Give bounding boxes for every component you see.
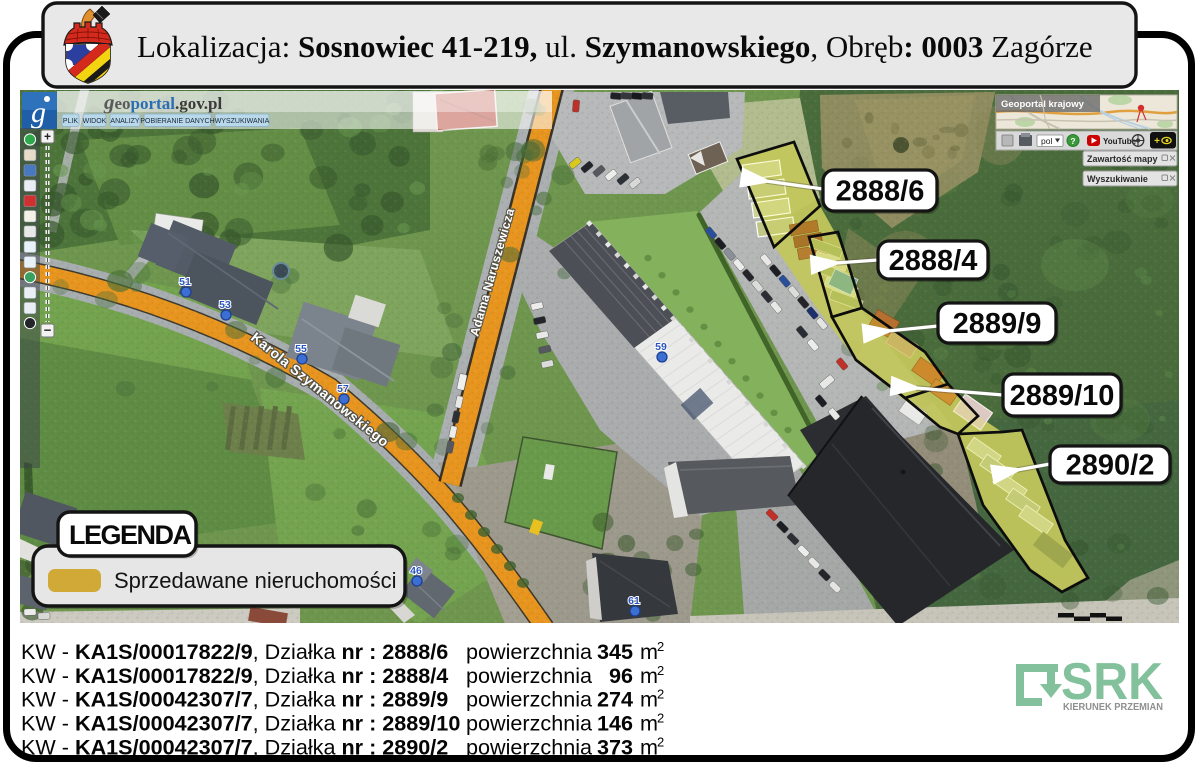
svg-text:powierzchnia: powierzchnia (466, 734, 593, 759)
svg-text:LEGENDA: LEGENDA (69, 520, 192, 550)
svg-text:m: m (640, 639, 658, 664)
svg-text:345: 345 (597, 639, 633, 664)
svg-text:96: 96 (609, 663, 633, 688)
svg-text:+: + (44, 130, 51, 144)
svg-text:2889/9: 2889/9 (953, 308, 1042, 340)
svg-text:powierzchnia: powierzchnia (466, 711, 593, 736)
svg-text:m: m (640, 663, 658, 688)
svg-text:m: m (640, 687, 658, 712)
svg-text:2: 2 (657, 687, 664, 702)
svg-text:2888/4: 2888/4 (889, 245, 978, 277)
svg-text:Sprzedawane nieruchomości: Sprzedawane nieruchomości (114, 568, 397, 593)
svg-text:ANALIZY: ANALIZY (110, 118, 140, 125)
svg-text:powierzchnia: powierzchnia (466, 663, 593, 688)
svg-text:2: 2 (657, 639, 664, 654)
svg-text:53: 53 (219, 299, 231, 311)
svg-text:2889/10: 2889/10 (1010, 380, 1115, 412)
svg-text:powierzchnia: powierzchnia (466, 687, 593, 712)
svg-text:g: g (31, 96, 46, 129)
svg-text:51: 51 (179, 276, 191, 288)
svg-text:2: 2 (657, 711, 664, 726)
svg-text:2: 2 (657, 663, 664, 678)
svg-text:46: 46 (410, 565, 422, 577)
svg-text:m: m (640, 734, 658, 759)
svg-text:Zawartość mapy: Zawartość mapy (1087, 154, 1158, 164)
svg-text:2888/6: 2888/6 (836, 176, 925, 208)
svg-text:−: − (44, 323, 52, 338)
svg-text:274: 274 (597, 687, 633, 712)
svg-text:KW - KA1S/00042307/7, Działka: KW - KA1S/00042307/7, Działka nr : 2890/… (21, 734, 448, 759)
svg-text:m: m (640, 711, 658, 736)
svg-text:KW - KA1S/00017822/9, Działka: KW - KA1S/00017822/9, Działka nr : 2888/… (21, 663, 448, 688)
svg-text:WYSZUKIWANIA: WYSZUKIWANIA (215, 118, 270, 125)
svg-text:+: + (1154, 136, 1160, 147)
svg-text:KIERUNEK PRZEMIAN: KIERUNEK PRZEMIAN (1063, 701, 1163, 713)
svg-text:57: 57 (337, 383, 349, 395)
svg-text:146: 146 (597, 711, 633, 736)
svg-text:pol: pol (1041, 136, 1052, 146)
svg-text:373: 373 (597, 734, 633, 759)
svg-text:Wyszukiwanie: Wyszukiwanie (1087, 174, 1148, 184)
svg-text:59: 59 (655, 341, 667, 353)
svg-text:WIDOK: WIDOK (83, 118, 107, 125)
svg-text:2: 2 (657, 734, 664, 749)
svg-text:Lokalizacja: Sosnowiec 41-219,: Lokalizacja: Sosnowiec 41-219, ul. Szyma… (137, 29, 1093, 64)
svg-text:KW - KA1S/00042307/7, Działka: KW - KA1S/00042307/7, Działka nr : 2889/… (21, 711, 460, 736)
svg-text:POBIERANIE DANYCH: POBIERANIE DANYCH (140, 118, 214, 125)
svg-text:55: 55 (295, 343, 307, 355)
svg-text:KW - KA1S/00017822/9, Działka: KW - KA1S/00017822/9, Działka nr : 2888/… (21, 639, 448, 664)
svg-text:KW - KA1S/00042307/7, Działka: KW - KA1S/00042307/7, Działka nr : 2889/… (21, 687, 448, 712)
svg-text:?: ? (1070, 136, 1075, 146)
svg-text:PLIK: PLIK (63, 118, 79, 125)
svg-text:powierzchnia: powierzchnia (466, 639, 593, 664)
svg-text:geoportal.gov.pl: geoportal.gov.pl (103, 90, 222, 114)
svg-text:61: 61 (628, 595, 640, 607)
svg-text:2890/2: 2890/2 (1066, 450, 1155, 482)
svg-text:YouTube: YouTube (1103, 137, 1137, 146)
